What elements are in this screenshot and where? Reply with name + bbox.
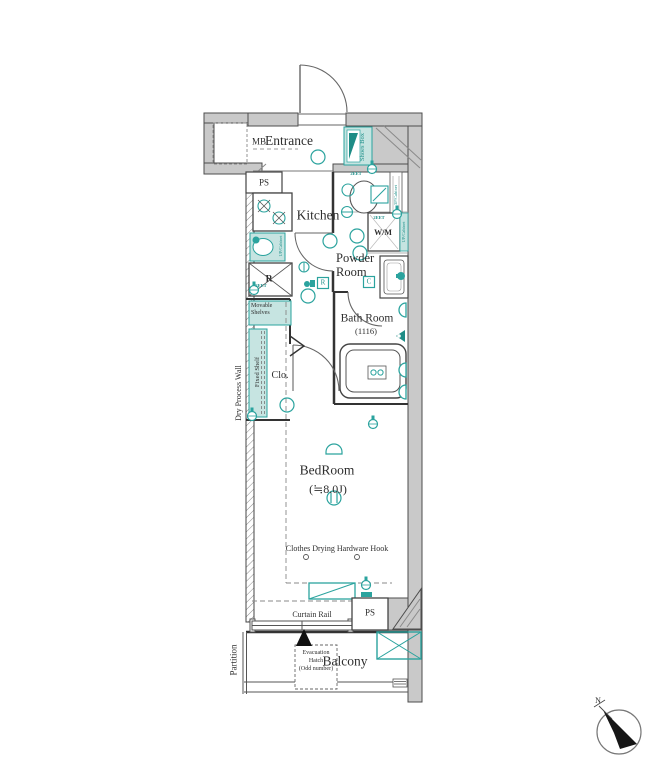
room-label-powder-2: Room — [336, 266, 367, 279]
compass-north-label: N — [595, 697, 601, 705]
compass-icon — [594, 700, 641, 754]
window-sill-icon — [309, 583, 355, 599]
bath-faucet-icon — [396, 330, 405, 342]
bath-size-label: (1116) — [355, 327, 377, 336]
mb-box — [213, 123, 247, 164]
room-label-balcony: Balcony — [323, 654, 368, 668]
curtain-rail-label: Curtain Rail — [292, 611, 331, 619]
bathtub-icon — [340, 344, 406, 398]
floorplan-canvas: MB PS Entrance Shoes Box Kitchen Powder … — [0, 0, 654, 770]
badge-r-label: R — [321, 280, 326, 287]
dry-process-wall-label: Dry Process Wall — [235, 365, 243, 421]
wm-cabinet-label: UP/Cabinet — [402, 222, 407, 243]
movable-shelves-label: Movable Shelves — [251, 303, 290, 317]
toilet-cabinet-label: 3P/Cabinet — [394, 185, 399, 205]
outlet-label-wm: 2EET — [373, 216, 384, 221]
mb-label: MB — [252, 138, 266, 147]
room-label-bedroom: BedRoom — [300, 463, 355, 477]
clothes-hook-label: Clothes Drying Hardware Hook — [286, 545, 388, 553]
drain-grill-icon — [393, 679, 407, 687]
fixed-shelf-label: Fixed Shelf — [255, 357, 262, 387]
evac-label-2: Hatch — [309, 658, 323, 664]
hook-points — [304, 555, 360, 560]
wm-label: W/M — [374, 229, 392, 237]
room-label-powder-1: Powder — [336, 252, 374, 265]
washbasin-icon — [380, 256, 408, 298]
room-label-entrance: Entrance — [265, 134, 313, 148]
room-label-bath: Bath Room — [341, 313, 394, 325]
shoes-box-label: Shoes Box — [360, 133, 367, 161]
entrance-door — [298, 65, 347, 125]
bedroom-window — [250, 619, 353, 632]
ps-bottom-label: PS — [365, 609, 375, 618]
outlet-label-fridge: 2EET — [255, 284, 266, 289]
room-label-kitchen: Kitchen — [297, 208, 340, 222]
partition-label: Partition — [230, 645, 239, 676]
stove-icon — [253, 193, 292, 231]
bedroom-size-label: (≒8.0J) — [309, 483, 347, 495]
badge-c-label: C — [367, 279, 372, 286]
kitchen-cabinet-label: UP/Cabinet — [279, 236, 284, 257]
closet-label: Clo. — [272, 371, 289, 381]
ps-top-label: PS — [259, 179, 269, 188]
outlet-label-toilet: 2EET — [350, 172, 361, 177]
